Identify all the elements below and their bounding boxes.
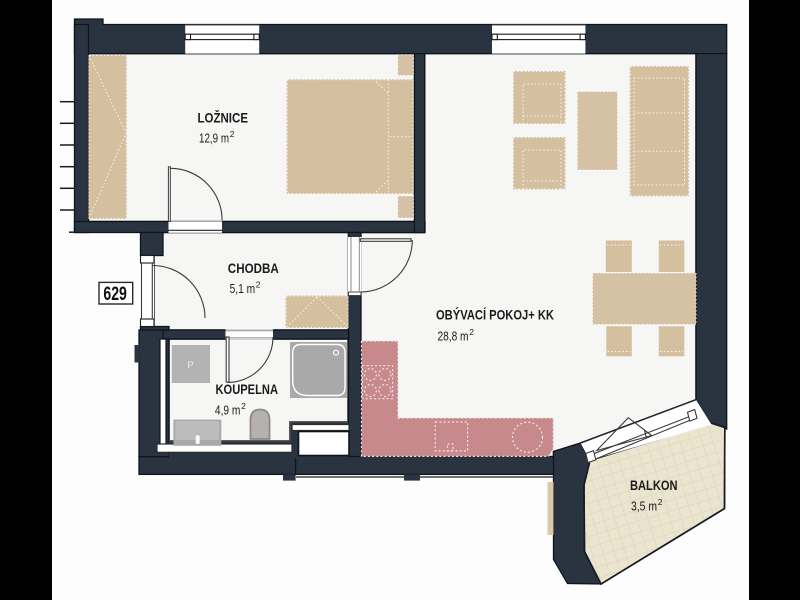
svg-text:OBÝVACÍ POKOJ+ KK: OBÝVACÍ POKOJ+ KK: [436, 306, 554, 323]
svg-text:4,9 m: 4,9 m: [215, 403, 241, 418]
svg-text:LOŽNICE: LOŽNICE: [198, 108, 249, 125]
svg-text:629: 629: [103, 283, 127, 305]
svg-text:5,1 m: 5,1 m: [230, 281, 256, 296]
svg-text:KOUPELNA: KOUPELNA: [216, 382, 279, 397]
svg-text:2: 2: [230, 129, 235, 139]
svg-text:2: 2: [658, 497, 663, 507]
svg-text:CHODBA: CHODBA: [228, 261, 279, 276]
svg-text:28,8 m: 28,8 m: [438, 328, 469, 343]
svg-text:BALKON: BALKON: [630, 478, 678, 493]
svg-text:2: 2: [469, 327, 474, 337]
svg-text:12,9 m: 12,9 m: [199, 130, 229, 145]
svg-text:3,5 m: 3,5 m: [631, 499, 657, 514]
svg-text:2: 2: [256, 280, 261, 290]
svg-text:P: P: [187, 360, 193, 371]
svg-text:2: 2: [241, 401, 246, 411]
